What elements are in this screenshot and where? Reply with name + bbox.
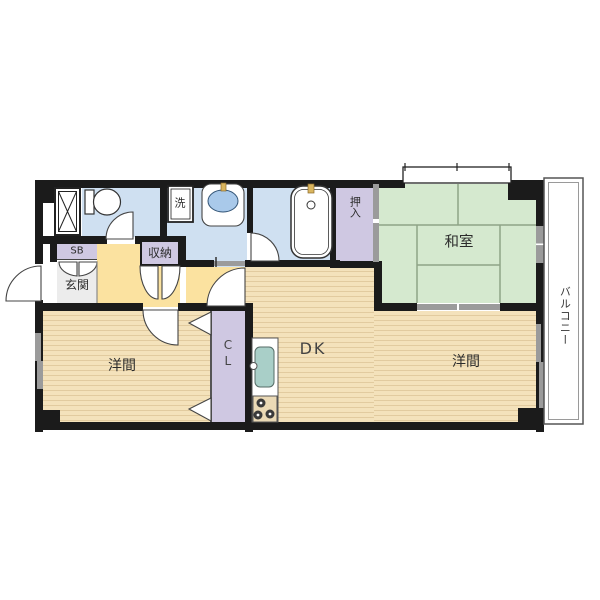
pipe-space-box: [55, 188, 80, 235]
youma-left-window: [37, 361, 43, 389]
storage-door-swing: [140, 266, 158, 299]
kitchen-counter: [250, 338, 278, 422]
fixtures-layer: [0, 0, 600, 600]
storage-label: 収納: [148, 247, 172, 261]
washbasin-icon: [202, 183, 244, 226]
dk-door-swing: [207, 268, 245, 306]
washroom-sliding-door: [214, 261, 245, 266]
youma-right-window: [536, 324, 541, 362]
shoebox-door-swing: [79, 262, 97, 276]
shoebox-door-swing: [59, 262, 77, 276]
youma-left-label: 洋間: [108, 358, 136, 374]
youma-right-label: 洋間: [452, 354, 480, 370]
shoebox-label: SB: [70, 245, 83, 257]
oshiire-fusuma-gap: [373, 219, 379, 223]
washitsu-sliding-gap: [457, 304, 459, 310]
cl-folding-door: [189, 398, 211, 421]
youma-left-door-swing: [143, 310, 178, 345]
entrance-door-swing: [6, 266, 41, 301]
bathroom-door-swing: [251, 233, 279, 261]
cl-folding-door: [189, 312, 211, 335]
genkan-label: 玄関: [65, 279, 89, 293]
bathtub-icon: [291, 184, 332, 258]
laundry-label: 洗: [175, 198, 186, 211]
window-gap: [536, 244, 544, 246]
floorplan: 洗 SB 玄関 収納 押入 和室 DK 洋間 洋間 CL バルコニー: [0, 0, 600, 600]
toilet-icon: [85, 189, 121, 215]
toilet-door-swing: [106, 212, 133, 239]
balcony-label: バルコニー: [558, 286, 571, 346]
washitsu-bay-window: [403, 163, 511, 183]
washitsu-label: 和室: [445, 235, 474, 252]
dk-label: DK: [300, 340, 327, 358]
oshiire-label: 押入: [348, 196, 361, 218]
storage-door-swing: [162, 266, 180, 299]
cl-label: CL: [220, 338, 234, 370]
youma-left-window: [35, 333, 41, 361]
